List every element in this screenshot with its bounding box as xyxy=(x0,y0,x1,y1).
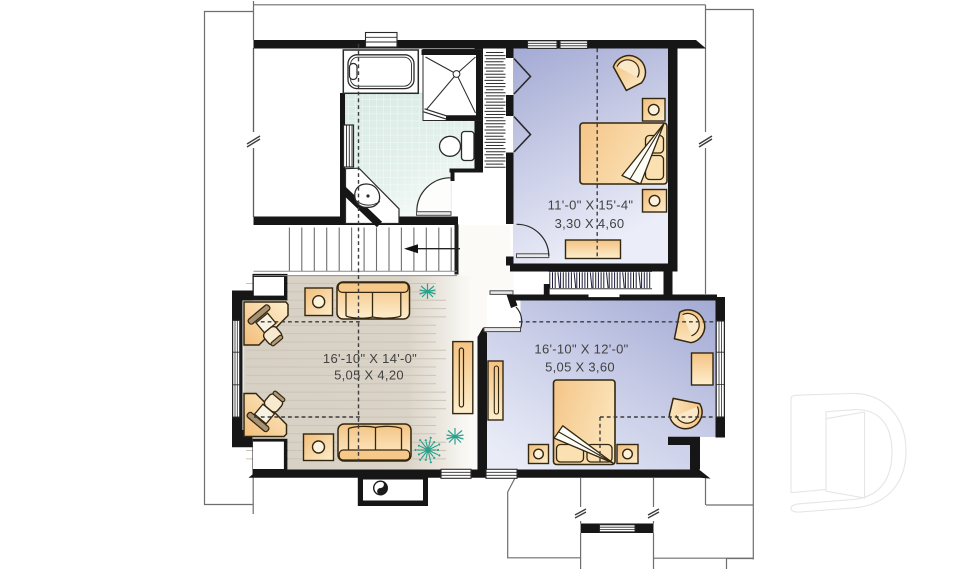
svg-text:11'-0" X 15'-4": 11'-0" X 15'-4" xyxy=(548,198,634,213)
svg-text:16'-10" X 14'-0": 16'-10" X 14'-0" xyxy=(323,351,417,366)
svg-text:5,05 X 4,20: 5,05 X 4,20 xyxy=(334,368,404,383)
svg-text:3,30 X 4,60: 3,30 X 4,60 xyxy=(555,216,625,231)
svg-text:16'-10" X 12'-0": 16'-10" X 12'-0" xyxy=(534,342,628,357)
svg-text:5,05 X 3,60: 5,05 X 3,60 xyxy=(545,360,615,375)
